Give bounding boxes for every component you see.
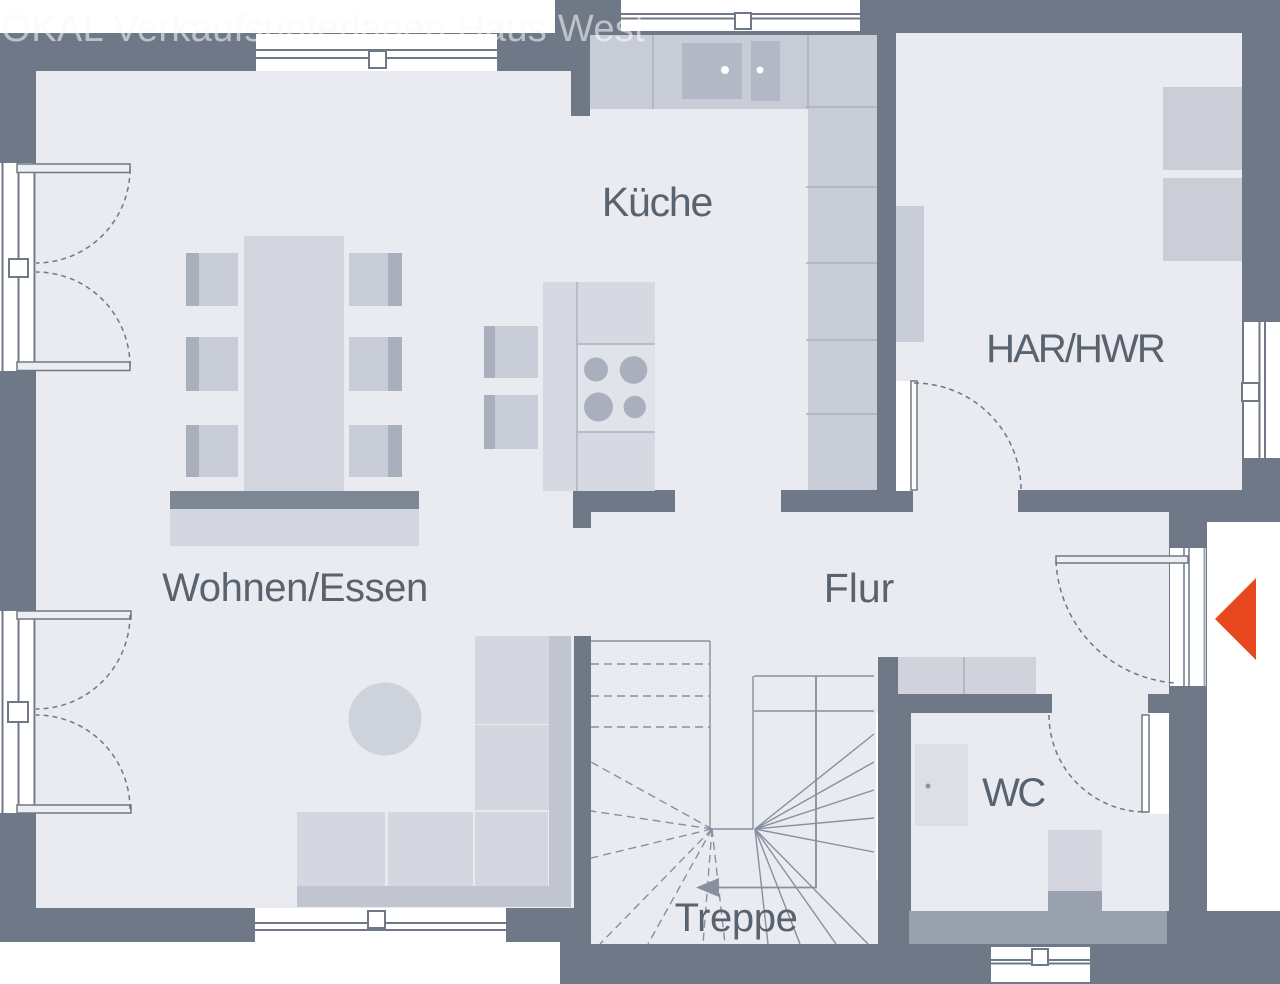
svg-text:WC: WC [982, 771, 1045, 815]
svg-text:Küche: Küche [602, 179, 712, 225]
svg-text:Treppe: Treppe [675, 896, 798, 940]
svg-text:OKAL Verkaufsunterlagen Haus W: OKAL Verkaufsunterlagen Haus West [1, 8, 645, 50]
svg-text:Flur: Flur [824, 565, 895, 611]
svg-text:Wohnen/Essen: Wohnen/Essen [162, 566, 428, 610]
svg-text:HAR/HWR: HAR/HWR [986, 327, 1165, 371]
